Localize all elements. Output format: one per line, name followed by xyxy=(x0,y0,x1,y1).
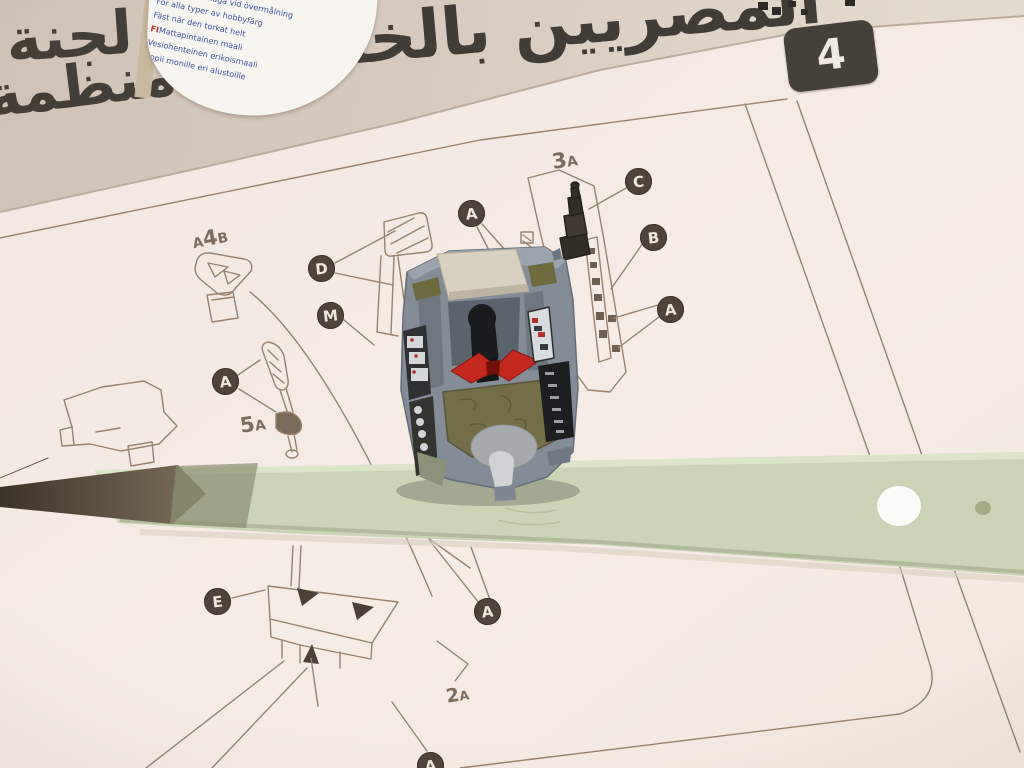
instruction-sheet-photo-layer xyxy=(0,0,1024,768)
step-number-tab: 4 xyxy=(782,19,879,93)
photo-model-kit-scene: المصريين بالخارج لجنة ٥٤٣ منظمة ج نقال ع… xyxy=(0,0,1024,768)
part-label-3A: 3A xyxy=(550,146,579,174)
step-number: 4 xyxy=(813,28,848,80)
strip-hole xyxy=(876,485,922,527)
cockpit-model-part xyxy=(401,247,578,501)
strip-mark xyxy=(975,501,991,515)
newspaper-photo-fragment xyxy=(758,0,855,15)
part-label-2A: 2A xyxy=(444,682,470,707)
part-label-5A: 5A xyxy=(238,410,267,438)
